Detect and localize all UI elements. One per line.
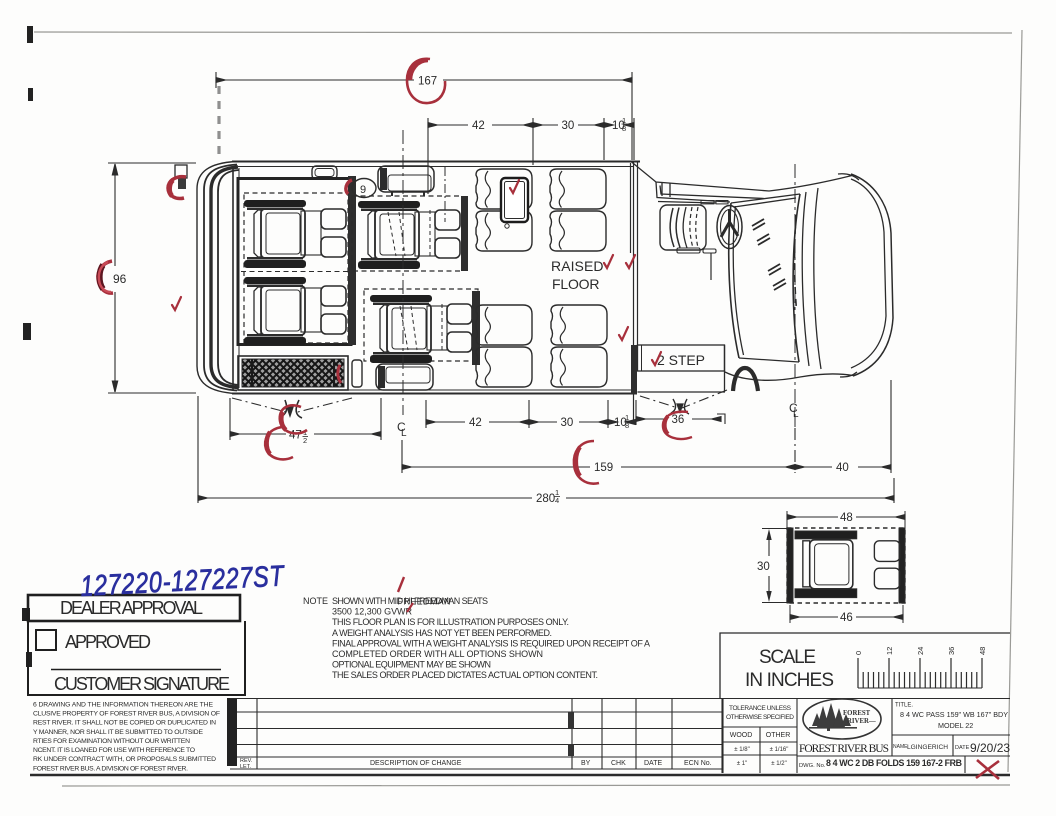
svg-text:THIS FLOOR PLAN IS FOR ILLUST: THIS FLOOR PLAN IS FOR ILLUSTRATION PURP…	[332, 617, 569, 627]
svg-text:TOLERANCE UNLESS: TOLERANCE UNLESS	[729, 705, 792, 712]
svg-text:FOREST RIVER BUS. A DIVISION O: FOREST RIVER BUS. A DIVISION OF FOREST R…	[33, 765, 188, 772]
svg-text:FINAL APPROVAL WITH A WEIGHT A: FINAL APPROVAL WITH A WEIGHT ANALYSIS IS…	[332, 638, 650, 648]
svg-text:280: 280	[536, 493, 555, 505]
svg-text:159: 159	[594, 462, 613, 474]
svg-text:CHK: CHK	[611, 760, 626, 767]
svg-text:6 DRAWING AND THE INFORMATION: 6 DRAWING AND THE INFORMATION THEREON AR…	[33, 702, 213, 709]
svg-text:2 STEP: 2 STEP	[657, 352, 705, 368]
svg-text:167: 167	[418, 76, 437, 88]
svg-text:RAISED: RAISED	[551, 258, 604, 274]
svg-text:MODEL 22: MODEL 22	[938, 721, 973, 730]
svg-text:FLOOR: FLOOR	[552, 276, 600, 292]
svg-text:REST RIVER. IT SHALL NOT BE CO: REST RIVER. IT SHALL NOT BE COPIED OR DU…	[33, 720, 216, 727]
svg-text:LGINGERICH: LGINGERICH	[907, 744, 948, 751]
svg-text:SCALE: SCALE	[759, 647, 816, 668]
svg-text:8 4 WC 2 DB FOLDS 159 167-2 FR: 8 4 WC 2 DB FOLDS 159 167-2 FRB	[826, 758, 962, 768]
svg-text:4: 4	[555, 496, 559, 505]
svg-text:FOREST RIVER BUS: FOREST RIVER BUS	[799, 743, 889, 755]
svg-text:RIVER—: RIVER—	[847, 718, 876, 725]
svg-text:DESCRIPTION OF CHANGE: DESCRIPTION OF CHANGE	[370, 760, 462, 767]
svg-text:LET.: LET.	[240, 764, 251, 770]
svg-text:THE SALES ORDER PLACED DICTATE: THE SALES ORDER PLACED DICTATES ACTUAL O…	[332, 670, 598, 680]
svg-text:46: 46	[840, 612, 853, 624]
svg-text:DATE: DATE	[955, 745, 970, 751]
svg-text:9: 9	[360, 184, 366, 196]
svg-text:COMPLETED ORDER WITH ALL OPTIO: COMPLETED ORDER WITH ALL OPTIONS SHOWN	[332, 649, 543, 659]
svg-text:3500 12,300 GVWR: 3500 12,300 GVWR	[332, 607, 413, 617]
svg-text:CLUSIVE PROPERTY OF FOREST RIV: CLUSIVE PROPERTY OF FOREST RIVER BUS, A …	[33, 711, 220, 718]
svg-text:30: 30	[561, 417, 574, 429]
svg-text:8: 8	[622, 124, 626, 133]
svg-text:12: 12	[885, 647, 894, 655]
svg-text:BY: BY	[581, 760, 591, 767]
svg-text:Y MANNER, NOR SHALL IT BE SUBM: Y MANNER, NOR SHALL IT BE SUBMITTED TO O…	[33, 729, 203, 736]
svg-text:ECN No.: ECN No.	[684, 760, 712, 767]
svg-text:± 1/16": ± 1/16"	[770, 747, 789, 753]
svg-text:DATE: DATE	[644, 760, 662, 767]
svg-text:40: 40	[836, 462, 849, 474]
svg-text:36: 36	[672, 414, 685, 426]
svg-text:48: 48	[978, 647, 987, 655]
svg-text:TITLE.: TITLE.	[895, 703, 913, 709]
svg-text:L: L	[793, 409, 799, 420]
svg-text:9/20/23: 9/20/23	[970, 741, 1010, 755]
svg-text:NCENT. IT IS LOANED FOR USE WI: NCENT. IT IS LOANED FOR USE WITH REFEREN…	[33, 747, 195, 754]
svg-text:RTIES FOR EXAMINATION WITHOUT: RTIES FOR EXAMINATION WITHOUT OUR WRITTE…	[33, 738, 190, 745]
svg-text:DWG. No.: DWG. No.	[799, 763, 826, 769]
svg-text:± 1": ± 1"	[737, 761, 747, 767]
svg-text:± 1/2": ± 1/2"	[771, 761, 786, 767]
svg-text:A WEIGHT ANALYSIS HAS NOT YET: A WEIGHT ANALYSIS HAS NOT YET BEEN PERFO…	[332, 628, 552, 638]
svg-text:CUSTOMER SIGNATURE: CUSTOMER SIGNATURE	[54, 674, 230, 694]
svg-text:24: 24	[916, 647, 925, 655]
svg-text:IN INCHES: IN INCHES	[745, 670, 834, 691]
svg-text:30: 30	[562, 120, 575, 132]
svg-text:OTHERWISE SPECIFIED: OTHERWISE SPECIFIED	[726, 714, 794, 721]
svg-text:FREEDMAN: FREEDMAN	[398, 596, 451, 606]
svg-text:L: L	[401, 428, 407, 439]
svg-text:8: 8	[625, 421, 629, 430]
svg-text:NAME: NAME	[893, 744, 908, 750]
svg-text:47: 47	[289, 430, 302, 442]
svg-text:FOREST: FOREST	[843, 710, 871, 717]
svg-text:30: 30	[757, 561, 770, 573]
svg-text:OTHER: OTHER	[766, 732, 791, 739]
svg-text:NOTE: NOTE	[303, 596, 328, 606]
svg-text:WOOD: WOOD	[730, 732, 753, 739]
svg-text:APPROVED: APPROVED	[65, 632, 151, 652]
svg-text:42: 42	[472, 120, 485, 132]
svg-text:36: 36	[947, 647, 956, 655]
svg-text:0: 0	[854, 651, 863, 655]
svg-text:42: 42	[469, 417, 482, 429]
svg-text:± 1/8": ± 1/8"	[734, 747, 749, 753]
svg-text:OPTIONAL EQUIPMENT MAY BE SHOW: OPTIONAL EQUIPMENT MAY BE SHOWN	[332, 660, 491, 670]
svg-text:96: 96	[113, 272, 127, 286]
svg-text:2: 2	[303, 436, 307, 445]
svg-text:48: 48	[840, 512, 853, 524]
svg-text:RK UNDER CONTRACT WITH, OR PRO: RK UNDER CONTRACT WITH, OR PROPOSALS SUB…	[33, 756, 216, 763]
svg-text:8 4 WC PASS 159" WB 167" BDY: 8 4 WC PASS 159" WB 167" BDY	[900, 710, 1008, 719]
